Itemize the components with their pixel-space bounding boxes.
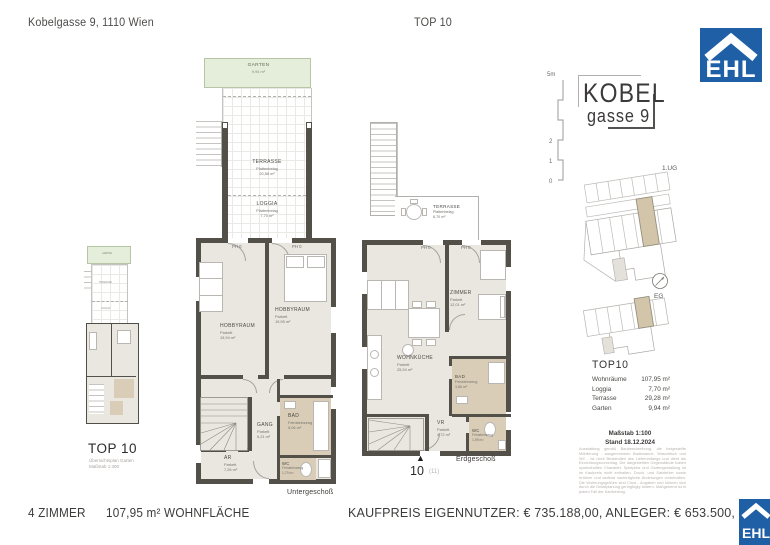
window [506, 267, 511, 291]
eg-upper-stairs [370, 122, 397, 216]
door-opening [253, 479, 269, 484]
chair [426, 301, 436, 308]
overview-scale: Maßstab 1:300 [89, 464, 119, 469]
eg-stairs [368, 418, 424, 451]
summary-label: Wohnräume [592, 375, 627, 385]
project-logo-line1: KOBEL [583, 80, 666, 107]
door-opening [466, 422, 469, 433]
room-label-wohnkueche: WOHNKÜCHE Parkett 25,94 m² [397, 355, 433, 372]
room-area: 19,95 m² [275, 319, 310, 324]
room-area: 1,70 m² [282, 471, 303, 475]
wall [445, 240, 449, 332]
furniture [89, 332, 97, 350]
terrace-chair [422, 208, 427, 216]
header-address: Kobelgasse 9, 1110 Wien [28, 17, 154, 29]
room-area: 7,26 m² [224, 467, 237, 472]
summary-label: Terrasse [592, 394, 617, 404]
wall [280, 395, 333, 398]
wall [111, 324, 112, 376]
footer-price: KAUFPREIS EIGENNUTZER: € 735.188,00, ANL… [348, 506, 735, 520]
overview-subtitle: Übersichtsplan Garten [89, 458, 134, 464]
room-label-hobbyraum-right: HOBBYRAUM Parkett 19,95 m² [275, 307, 310, 324]
overview-terrasse-label: TERRASSE [99, 281, 112, 284]
loggia-dashed-line [223, 195, 311, 196]
window [331, 307, 336, 333]
sofa [367, 280, 409, 310]
bed [199, 262, 223, 312]
overview-divider [92, 301, 128, 302]
washbasin [284, 401, 296, 409]
ph-label: PH 0 [292, 244, 302, 249]
summary-value: 107,95 m² [641, 375, 670, 385]
wall [87, 376, 136, 377]
hob [370, 368, 379, 377]
room-area: 1,59 m² [472, 438, 493, 442]
ph-label: PH 0 [232, 244, 242, 249]
terrace-dashed-line [223, 96, 311, 97]
wall [367, 414, 429, 417]
pillow [286, 256, 304, 268]
overview-stairs [84, 271, 91, 289]
ph-label: PH 0 [461, 245, 471, 250]
plan-scale: Maßstab 1:100 [584, 429, 676, 438]
room-area: 4,72 m² [437, 432, 450, 437]
room-label-bad-eg: BAD Feinsteinzeug 3,86 m² [455, 374, 477, 389]
summary-title: TOP10 [592, 359, 666, 371]
summary-value: 29,28 m² [645, 394, 670, 404]
room-label-terrasse: TERRASSE Plattenbelag 20,58 m² [223, 159, 311, 176]
overview-stairs-lower [89, 384, 104, 414]
wall [248, 397, 252, 451]
overview-building [86, 323, 139, 424]
ug-stairs [200, 397, 248, 451]
wall-notch [223, 123, 227, 128]
siteplan-eg [578, 294, 688, 358]
ug-garden: GARTEN 9,94 m² [204, 58, 311, 88]
room-area: 7,70 m² [260, 213, 273, 218]
furniture-line [395, 280, 396, 310]
wall [222, 122, 228, 240]
room-label-gang: GANG Parkett 6,21 m² [257, 422, 273, 439]
entrance-note: (11) [429, 469, 439, 475]
room-label-loggia: LOGGIA Plattenbelag 7,70 m² [223, 201, 311, 218]
chair [412, 339, 422, 346]
terrace-chair [410, 199, 418, 204]
door-opening [277, 402, 280, 416]
furniture-line [381, 280, 382, 310]
door-opening [272, 238, 292, 243]
shower [488, 362, 505, 384]
wall-notch [307, 123, 311, 128]
washbasin [498, 440, 506, 450]
summary-row: Wohnräume 107,95 m² [592, 375, 670, 385]
project-logo-line2: gasse 9 [587, 107, 650, 125]
room-label-ar: AR Parkett 7,26 m² [224, 455, 237, 472]
room-area: 8,70 m² [433, 215, 460, 220]
furniture [117, 330, 131, 344]
overview-wc [110, 401, 123, 415]
window [331, 387, 336, 409]
summary-row: Loggia 7,70 m² [592, 385, 670, 395]
scale-mark-0: 0 [549, 179, 553, 185]
footer-living-area: 107,95 m² WOHNFLÄCHE [106, 506, 249, 520]
scale-and-date: Maßstab 1:100 Stand 18.12.2024 [584, 429, 676, 447]
overview-garden: GARTEN [87, 246, 131, 264]
wall [452, 414, 511, 417]
room-label-bad: BAD Feinsteinzeug 5,06 m² [288, 413, 312, 430]
room-area: 6,21 m² [257, 434, 273, 439]
wall [425, 417, 429, 451]
scale-mark-2: 2 [549, 139, 553, 145]
scale-bar: 5m 2 1 0 [545, 64, 573, 190]
room-area: 25,94 m² [397, 367, 433, 372]
room-label-wc: WC Feinsteinzeug 1,70 m² [282, 461, 303, 475]
summary-block: TOP10 Wohnräume 107,95 m² Loggia 7,70 m²… [592, 359, 670, 414]
room-label-vr: VR Parkett 4,72 m² [437, 420, 450, 437]
overview-title: TOP 10 [88, 441, 137, 456]
wall [449, 356, 511, 359]
furniture-line [199, 295, 223, 296]
header-unit-label: TOP 10 [414, 17, 452, 29]
ehl-logo-footer-text: EHL [742, 525, 770, 541]
sink [370, 350, 379, 359]
terrace-table [406, 204, 422, 220]
summary-table: Wohnräume 107,95 m² Loggia 7,70 m² Terra… [592, 375, 670, 414]
room-area: 19,94 m² [220, 335, 255, 340]
entrance-number: 10 [410, 464, 424, 478]
entrance-arrow-icon: ▲ [416, 453, 425, 463]
room-area: 20,58 m² [259, 171, 274, 176]
scale-mark-1: 1 [549, 159, 553, 165]
wardrobe [480, 250, 506, 280]
washbasin [456, 396, 468, 404]
door-opening [449, 366, 452, 379]
overview-loggia-label: LOGGIA [101, 307, 110, 310]
wall [196, 375, 336, 379]
utility-box [318, 459, 331, 478]
room-label-zimmer: ZIMMER Parkett 12,01 m² [450, 290, 472, 307]
scale-bar-top-label: 5m [547, 72, 555, 78]
ehl-logo-footer: EHL [736, 499, 770, 545]
room-label-hobbyraum-left: HOBBYRAUM Parkett 19,94 m² [220, 323, 255, 340]
wall [449, 356, 452, 416]
wall [265, 238, 269, 379]
room-label-wc-eg: WC Feinsteinzeug 1,59 m² [472, 428, 493, 442]
pillow [307, 256, 325, 268]
overview-bath [114, 379, 134, 398]
chair [412, 301, 422, 308]
disclaimer-text: Ausstattung gemäß Baubeschreibung, die b… [579, 447, 686, 495]
summary-row: Garten 9,94 m² [592, 404, 670, 414]
ph-label: PH 0 [421, 245, 431, 250]
furniture-line [199, 278, 223, 279]
bathtub [313, 401, 329, 451]
overview-garden-label: GARTEN [102, 252, 112, 255]
ehl-logo: EHL [700, 28, 762, 82]
eg-caption: Erdgeschoß [456, 456, 496, 463]
wall [306, 122, 312, 240]
chair [426, 339, 436, 346]
page: Kobelgasse 9, 1110 Wien TOP 10 EHL GARTE… [0, 0, 770, 545]
overview-terrace: TERRASSE LOGGIA [91, 264, 128, 323]
room-label-terrasse-eg: TERRASSE Plattenbelag 8,70 m² [433, 204, 460, 220]
wall [331, 238, 336, 484]
summary-value: 7,70 m² [648, 385, 670, 395]
door-opening [228, 238, 248, 243]
ug-caption: Untergeschoß [287, 489, 333, 496]
overview-plan: GARTEN TERRASSE LOGGIA [84, 245, 142, 427]
room-area: 12,01 m² [450, 302, 472, 307]
room-area: 9,94 m² [252, 69, 265, 74]
ug-plan: GARTEN 9,94 m² TERRASSE Plattenbelag 20,… [196, 57, 338, 499]
footer-rooms: 4 ZIMMER [28, 506, 86, 520]
eg-plan: TERRASSE Plattenbelag 8,70 m² PH 0 PH 0 … [362, 112, 512, 460]
summary-value: 9,94 m² [648, 404, 670, 414]
dining-table [408, 308, 440, 338]
room-area: 5,06 m² [288, 425, 312, 430]
summary-label: Garten [592, 404, 612, 414]
room-area: 3,86 m² [455, 385, 477, 390]
ehl-logo-text: EHL [706, 56, 757, 82]
project-logo: KOBEL gasse 9 [576, 72, 686, 132]
siteplan-ug-label: 1.UG [662, 165, 677, 172]
neighbour-stairs [196, 121, 222, 167]
pillow [500, 296, 505, 318]
summary-label: Loggia [592, 385, 611, 395]
wall [280, 455, 333, 458]
room-label-garten: GARTEN 9,94 m² [205, 63, 312, 74]
terrace-chair [401, 208, 406, 216]
summary-row: Terrasse 29,28 m² [592, 394, 670, 404]
siteplan-ug: 1.UG [578, 156, 696, 296]
